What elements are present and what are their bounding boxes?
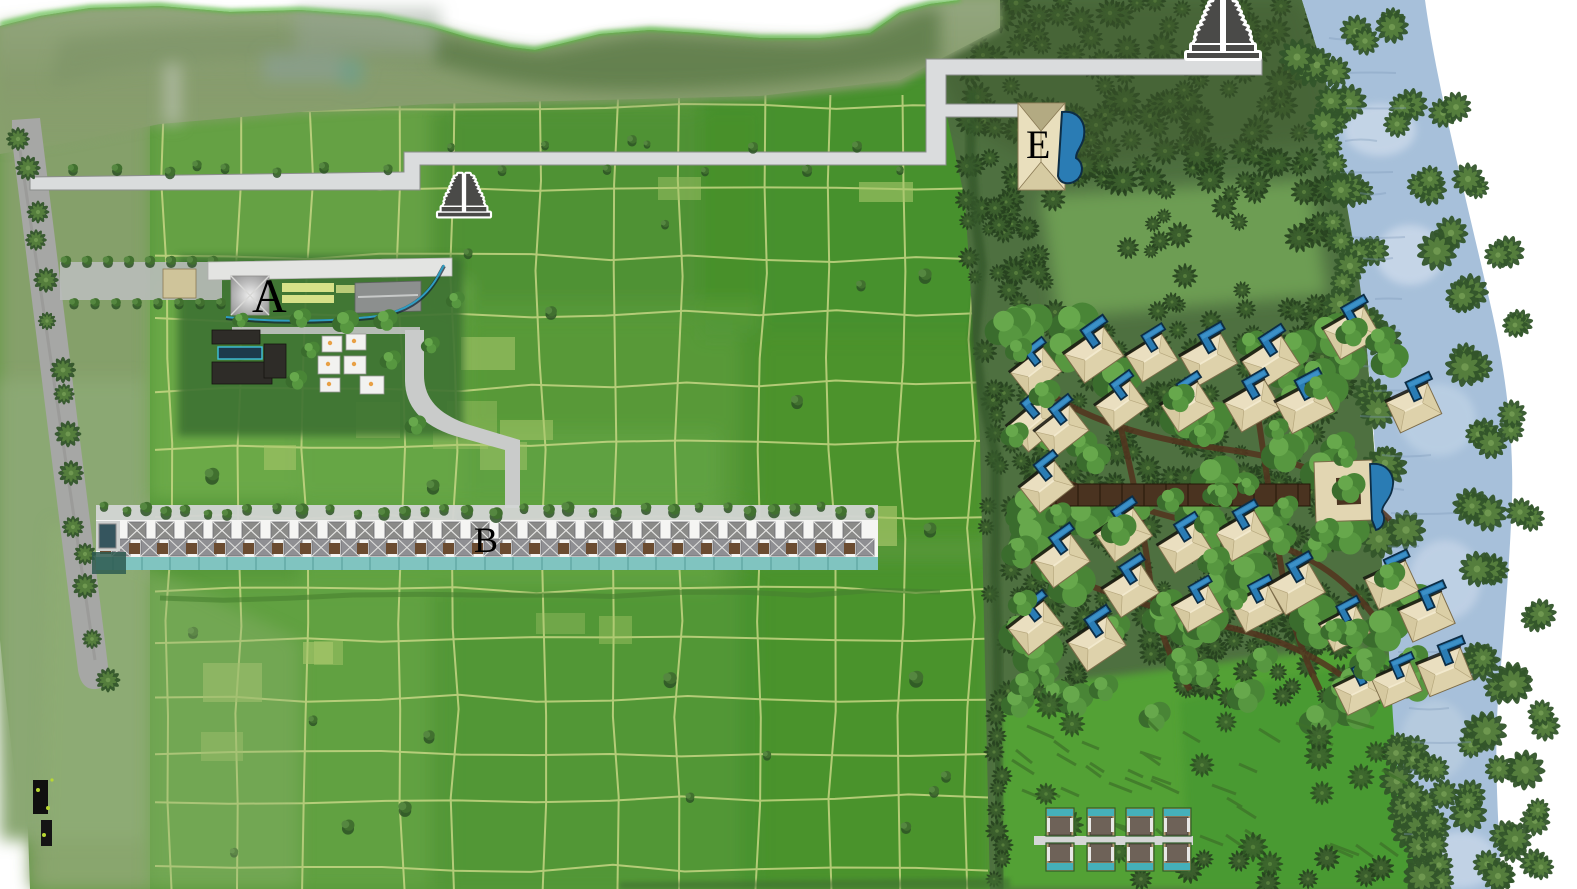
svg-text:A: A	[252, 270, 287, 323]
svg-text:E: E	[1026, 122, 1050, 167]
svg-text:B: B	[474, 520, 498, 560]
